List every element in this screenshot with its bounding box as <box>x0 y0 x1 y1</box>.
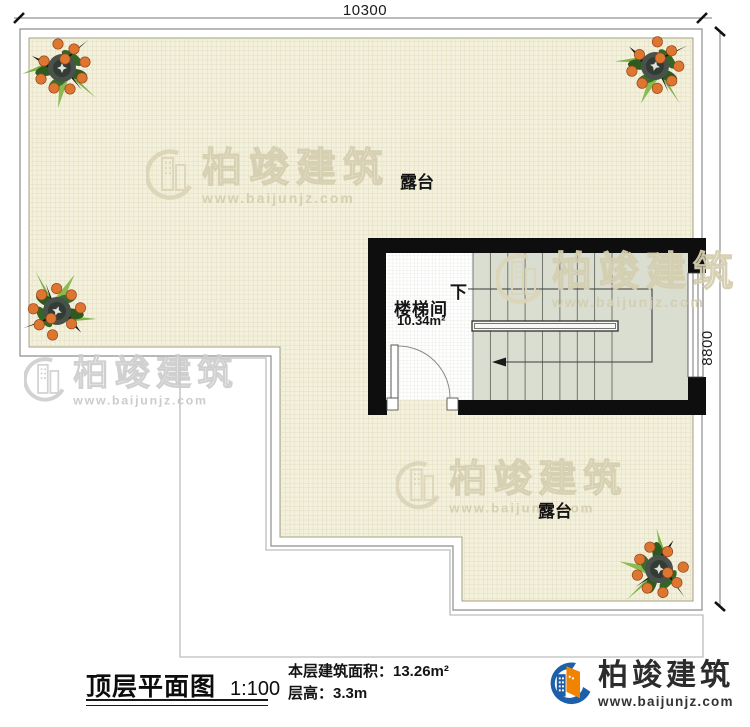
drawing-title: 顶层平面图 <box>86 667 216 703</box>
stair-direction-label: 下 <box>450 278 467 303</box>
floorplan-drawing <box>0 0 750 660</box>
brand-logo-icon <box>544 661 592 713</box>
dimension-right: 8800 <box>699 313 715 383</box>
legend-height-line: 层高：3.3m <box>288 683 449 705</box>
dimension-top: 10300 <box>330 2 400 19</box>
brand-block: 柏竣建筑 www.baijunjz.com <box>544 661 734 713</box>
drawing-scale: 1:100 <box>230 678 280 701</box>
door-leaf <box>391 345 398 398</box>
brand-url: www.baijunjz.com <box>598 694 734 709</box>
legend-title-row: 顶层平面图 1:100 <box>86 667 280 703</box>
floorplan-page: 柏竣建筑 www.baijunjz.com 柏竣建筑 www.baijunjz.… <box>0 0 750 727</box>
stair-handrail <box>472 321 618 331</box>
brand-text: 柏竣建筑 www.baijunjz.com <box>598 661 734 709</box>
stairwell-area: 10.34m² <box>397 313 445 328</box>
legend-area-line: 本层建筑面积：13.26m² <box>288 661 449 683</box>
terrace-label-bottom: 露台 <box>538 497 572 522</box>
brand-name: 柏竣建筑 <box>598 661 734 691</box>
legend-info: 本层建筑面积：13.26m² 层高：3.3m <box>288 661 449 705</box>
terrace-label-top: 露台 <box>400 168 434 193</box>
title-underline <box>86 699 268 706</box>
